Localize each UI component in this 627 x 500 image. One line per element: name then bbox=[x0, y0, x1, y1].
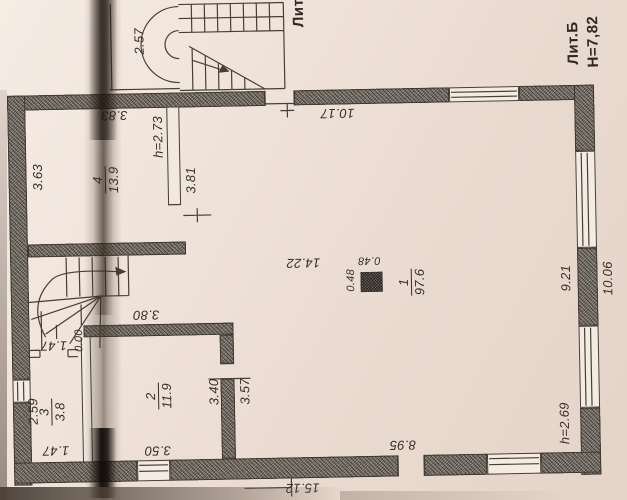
dim-room4-top: 3.83 bbox=[101, 109, 128, 123]
room-3-number: 3 bbox=[37, 408, 50, 416]
room-label-4: 4 13.9 bbox=[91, 166, 121, 194]
dim-room3-bottom: 1.47 bbox=[42, 444, 69, 458]
room-4-area: 13.9 bbox=[107, 166, 121, 193]
building-height-label: Н=7,82 bbox=[585, 16, 601, 68]
room-2-area: 11.9 bbox=[160, 383, 173, 409]
room-2-number: 2 bbox=[144, 392, 157, 400]
dim-porch-width: 2.57 bbox=[132, 28, 146, 55]
dim-hall-mid: 14.22 bbox=[286, 256, 320, 270]
stair-level-mark: 0.00 bbox=[74, 329, 85, 352]
floor-plan: Лит.Б Н=7,82 Лит. 2.57 10.17 9.21 10.06 … bbox=[0, 0, 627, 500]
dim-right-outer: 10.06 bbox=[601, 261, 615, 295]
room-label-2: 2 11.9 bbox=[144, 382, 174, 410]
dim-top-inner: 10.17 bbox=[320, 107, 354, 121]
room-label-hall: 1 97.6 bbox=[397, 268, 427, 296]
dim-room2-right: 3.40 bbox=[207, 379, 221, 406]
scanned-floor-plan-page: Лит.Б Н=7,82 Лит. 2.57 10.17 9.21 10.06 … bbox=[0, 0, 627, 500]
room-hall-area: 97.6 bbox=[413, 269, 427, 296]
dim-right-inner: 9.21 bbox=[559, 265, 573, 292]
dim-bottom-inner: 8.95 bbox=[389, 439, 416, 453]
room-label-3: 3 3.8 bbox=[37, 398, 67, 426]
dim-room2-door: 3.57 bbox=[238, 378, 252, 405]
room-3-area: 3.8 bbox=[54, 402, 67, 421]
building-liter-label: Лит.Б bbox=[565, 21, 581, 65]
dim-room3-top: 1.47 bbox=[40, 339, 67, 353]
dim-room2-top: 3.80 bbox=[133, 308, 160, 322]
dim-room4-left: 3.63 bbox=[31, 164, 45, 191]
dim-room2-bottom: 3.50 bbox=[144, 444, 171, 458]
porch-liter-label: Лит. bbox=[291, 0, 307, 27]
dim-height-hall: h=2.69 bbox=[557, 402, 571, 444]
dim-room4-wall: 3.81 bbox=[184, 167, 198, 194]
dim-height-room4: h=2.73 bbox=[151, 116, 165, 158]
plan-linework bbox=[0, 0, 627, 500]
dim-column-w: 0.48 bbox=[358, 254, 381, 265]
room-4-number: 4 bbox=[91, 176, 104, 184]
dim-bottom-outer: 15.12 bbox=[285, 481, 319, 495]
dim-column-h: 0.48 bbox=[346, 269, 357, 292]
room-hall-number: 1 bbox=[397, 278, 410, 286]
